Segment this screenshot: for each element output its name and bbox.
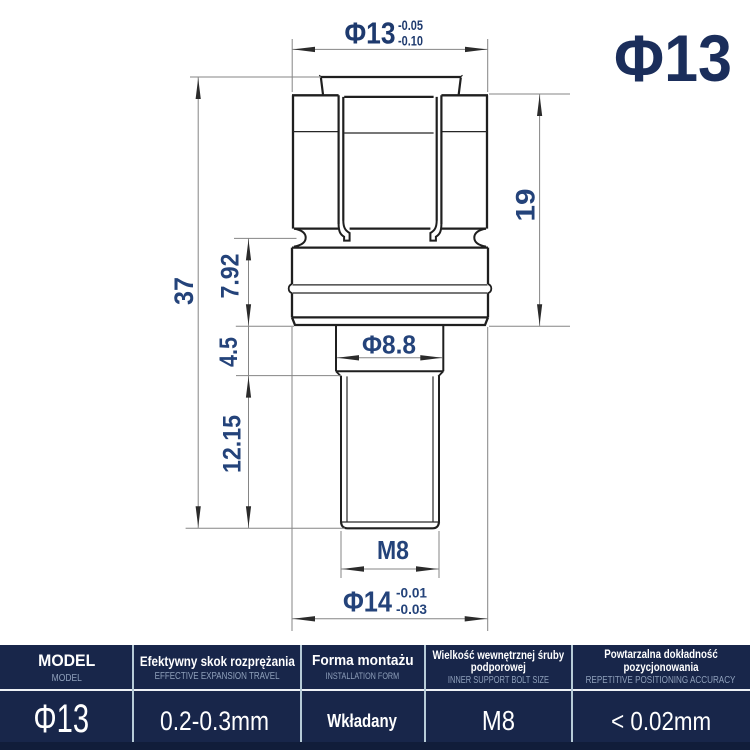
svg-text:12.15: 12.15 [219, 415, 247, 473]
svg-text:Φ13: Φ13 [614, 21, 732, 95]
svg-text:-0.01: -0.01 [396, 586, 427, 601]
svg-text:19: 19 [511, 189, 541, 222]
svg-text:37: 37 [169, 277, 199, 305]
svg-text:Φ14: Φ14 [343, 587, 392, 619]
svg-text:-0.03: -0.03 [396, 602, 427, 617]
svg-text:-0.05: -0.05 [398, 18, 423, 33]
svg-text:Φ13: Φ13 [345, 15, 396, 50]
svg-text:Φ8.8: Φ8.8 [362, 330, 416, 360]
svg-text:4.5: 4.5 [215, 337, 243, 367]
svg-text:-0.10: -0.10 [398, 34, 423, 49]
svg-text:M8: M8 [377, 535, 409, 565]
svg-text:7.92: 7.92 [217, 254, 245, 299]
